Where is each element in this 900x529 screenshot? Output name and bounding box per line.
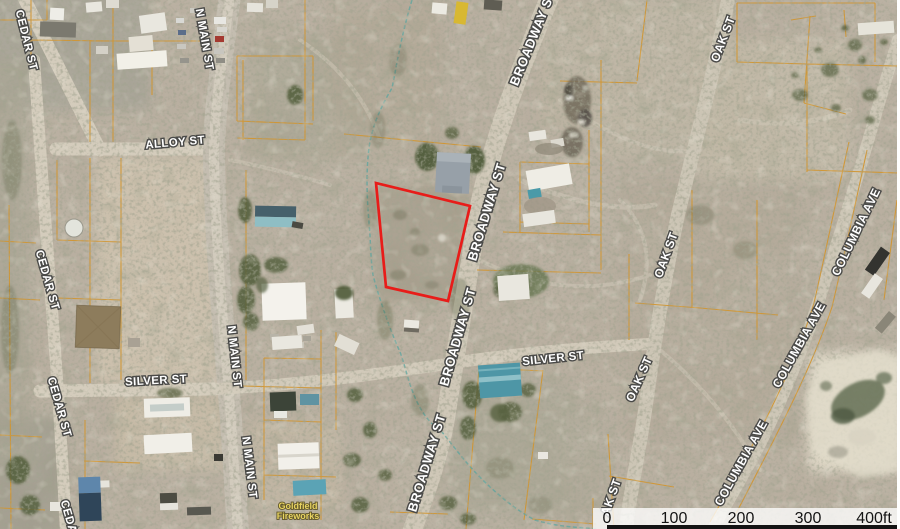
svg-text:Goldfield: Goldfield [279,501,318,511]
svg-text:400ft: 400ft [856,510,892,527]
svg-text:0: 0 [603,510,612,527]
svg-text:Fireworks: Fireworks [277,511,320,521]
svg-text:100: 100 [661,510,688,527]
svg-text:300: 300 [795,510,822,527]
svg-text:200: 200 [728,510,755,527]
